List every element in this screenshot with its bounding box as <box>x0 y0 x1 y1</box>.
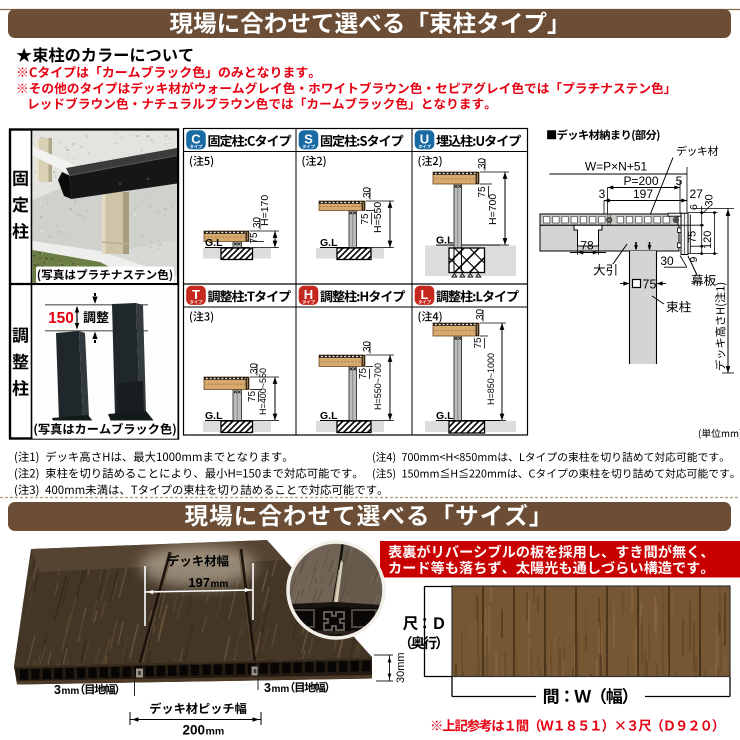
svg-text:W=P×N+51: W=P×N+51 <box>585 160 648 174</box>
svg-text:U: U <box>420 132 429 147</box>
svg-text:××: ×× <box>233 241 241 248</box>
svg-text:75: 75 <box>687 231 699 243</box>
svg-text:H=550~700: H=550~700 <box>373 363 383 410</box>
svg-text:75: 75 <box>358 367 369 379</box>
svg-text:G.L: G.L <box>436 235 454 247</box>
svg-text:75: 75 <box>249 232 260 244</box>
svg-text:200: 200 <box>182 723 205 738</box>
svg-text:S: S <box>304 132 313 147</box>
svg-text:P=200: P=200 <box>623 174 658 188</box>
svg-text:78: 78 <box>580 239 594 253</box>
svg-text:30: 30 <box>660 254 674 268</box>
svg-text:75: 75 <box>473 337 484 349</box>
svg-text:9: 9 <box>688 257 700 263</box>
svg-text:××: ×× <box>349 210 357 217</box>
svg-text:3: 3 <box>264 681 271 695</box>
svg-text:G.L: G.L <box>205 237 223 249</box>
svg-text:H=170: H=170 <box>259 195 271 226</box>
svg-text:30: 30 <box>362 340 373 352</box>
svg-text:G.L: G.L <box>436 410 454 422</box>
svg-text:30: 30 <box>475 308 486 320</box>
svg-text:30: 30 <box>704 194 716 206</box>
svg-text:27: 27 <box>690 187 704 201</box>
svg-text:30: 30 <box>362 186 373 198</box>
svg-text:××: ×× <box>454 184 462 191</box>
svg-text:G.L: G.L <box>320 237 338 249</box>
svg-text:197: 197 <box>188 575 210 590</box>
svg-text:H: H <box>304 287 313 302</box>
svg-text:H=700: H=700 <box>487 194 499 225</box>
svg-text:mm: mm <box>272 684 290 695</box>
svg-text:30: 30 <box>477 157 488 169</box>
svg-text:3: 3 <box>599 187 606 201</box>
svg-text:G.L: G.L <box>320 410 338 422</box>
svg-text:5: 5 <box>676 174 683 188</box>
svg-text:mm: mm <box>206 726 225 738</box>
svg-text:mm: mm <box>211 579 229 590</box>
svg-text:6: 6 <box>688 204 700 210</box>
svg-text:L: L <box>421 287 429 302</box>
svg-text:120: 120 <box>702 231 714 249</box>
svg-text:C: C <box>191 132 201 147</box>
svg-text:××: ×× <box>454 336 462 343</box>
svg-text:150: 150 <box>48 310 74 327</box>
svg-text:75: 75 <box>360 213 371 225</box>
svg-text:H=850~1000: H=850~1000 <box>486 353 496 405</box>
svg-text:3: 3 <box>54 683 61 697</box>
svg-text:G.L: G.L <box>205 410 223 422</box>
svg-text:197: 197 <box>633 187 653 201</box>
svg-text:mm: mm <box>62 686 80 697</box>
svg-text:H=400~550: H=400~550 <box>258 368 268 415</box>
svg-text:××: ×× <box>233 389 241 396</box>
svg-text:75: 75 <box>643 278 657 292</box>
svg-text:H=550: H=550 <box>372 202 384 233</box>
svg-text:30mm: 30mm <box>395 652 407 683</box>
svg-text:T: T <box>192 287 200 302</box>
svg-text:75: 75 <box>247 390 258 402</box>
svg-text:××: ×× <box>349 366 357 373</box>
